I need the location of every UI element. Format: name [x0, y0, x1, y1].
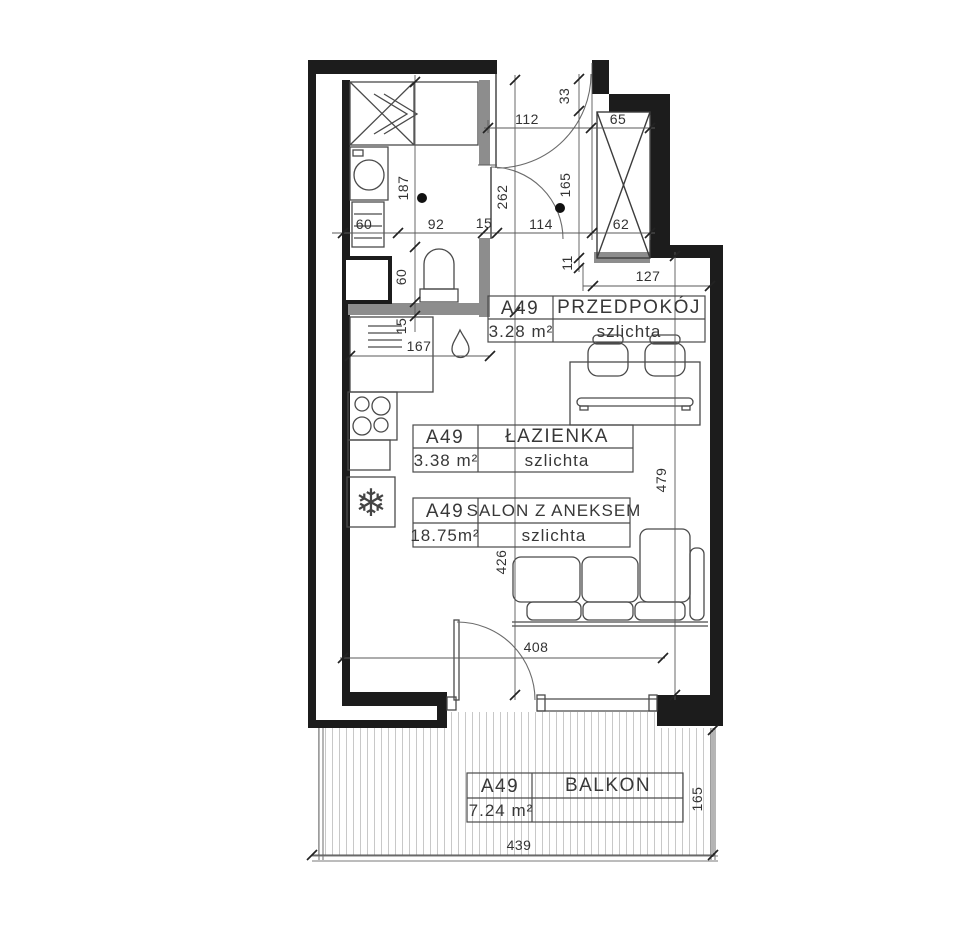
- chair-2: [645, 335, 685, 376]
- wall-bottom-left-outer: [308, 720, 447, 728]
- room-name: SALON Z ANEKSEM: [467, 501, 642, 520]
- dim-112: 112: [515, 111, 539, 127]
- fridge: ❄: [347, 477, 395, 527]
- ventilation-shaft: [597, 112, 650, 258]
- toilet: [420, 249, 458, 302]
- room-area: 3.28 m²: [489, 322, 554, 341]
- doors: [447, 74, 657, 711]
- dim-262: 262: [494, 185, 510, 210]
- dim-426: 426: [493, 550, 509, 575]
- wardrobe: [350, 82, 478, 145]
- dim-15-wall: 15: [393, 318, 409, 335]
- wall-left-inner: [342, 80, 350, 706]
- washing-machine: [350, 147, 388, 200]
- snowflake-icon: ❄: [355, 481, 387, 525]
- room-finish: szlichta: [522, 526, 587, 545]
- wall-entry-jamb: [592, 60, 609, 94]
- floor-plan-page: ❄: [0, 0, 953, 930]
- dim-33: 33: [556, 88, 572, 105]
- wall-bottom-left-joint: [437, 706, 447, 722]
- dim-127: 127: [636, 268, 661, 284]
- laptop: [577, 398, 693, 406]
- dim-114: 114: [529, 216, 553, 232]
- balcony-door-leaf: [454, 620, 459, 700]
- room-finish: szlichta: [525, 451, 590, 470]
- balcony-threshold-hatch: [449, 712, 655, 728]
- room-area: 3.38 m²: [414, 451, 479, 470]
- dim-60-wm: 60: [356, 216, 373, 232]
- wall-left-outer: [308, 60, 316, 728]
- dim-60-wc: 60: [393, 269, 409, 286]
- wall-bottom-right: [657, 695, 723, 726]
- dim-439: 439: [507, 837, 532, 853]
- duct-shaft: [344, 258, 390, 302]
- room-finish: szlichta: [597, 322, 662, 341]
- room-code: A49: [426, 501, 464, 522]
- room-name: BALKON: [565, 775, 651, 796]
- cooktop: [348, 392, 397, 470]
- point-marker-1: [417, 193, 427, 203]
- entry-door-swing: [497, 74, 591, 168]
- dim-165-balcony: 165: [689, 787, 705, 812]
- room-name: ŁAZIENKA: [505, 426, 609, 447]
- dim-479: 479: [653, 468, 669, 493]
- dim-65: 65: [610, 111, 627, 127]
- wall-right-step: [670, 245, 723, 258]
- dim-92: 92: [428, 216, 445, 232]
- dim-187: 187: [395, 176, 411, 201]
- window-end-left: [537, 695, 545, 711]
- room-area: 7.24 m²: [469, 801, 534, 820]
- room-code: A49: [426, 427, 464, 448]
- room-code: A49: [481, 776, 519, 797]
- dim-62: 62: [613, 216, 630, 232]
- kitchen-counter: [350, 317, 433, 392]
- dim-408: 408: [524, 639, 549, 655]
- floor-plan-drawing: ❄: [0, 0, 953, 930]
- wall-top: [308, 60, 497, 74]
- label-lazienka: A49 ŁAZIENKA 3.38 m² szlichta: [413, 425, 633, 472]
- wall-bottom-left-inner: [342, 692, 447, 706]
- room-area: 18.75m²: [410, 526, 479, 545]
- dim-15-door: 15: [476, 215, 493, 231]
- wall-shaft-header: [609, 94, 670, 112]
- wall-right-upper: [650, 112, 670, 258]
- water-drop-icon: [452, 330, 469, 358]
- label-salon: A49 SALON Z ANEKSEM 18.75m² szlichta: [410, 498, 641, 547]
- room-name: PRZEDPOKÓJ: [557, 296, 701, 318]
- chair-1: [588, 335, 628, 376]
- room-code: A49: [501, 298, 539, 319]
- wall-right: [710, 258, 723, 726]
- point-marker-2: [555, 203, 565, 213]
- dim-11: 11: [559, 255, 575, 271]
- dim-165-entry: 165: [557, 173, 573, 198]
- window-end-right: [649, 695, 657, 711]
- dim-167: 167: [407, 338, 432, 354]
- balcony-door-swing: [457, 622, 535, 700]
